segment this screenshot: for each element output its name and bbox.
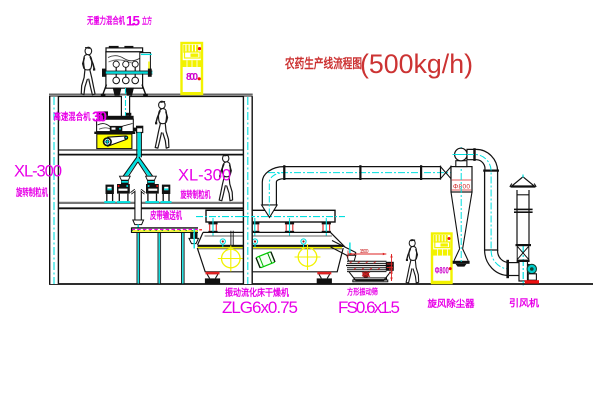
svg-text:方形振动筛: 方形振动筛 xyxy=(347,287,378,297)
svg-text:无重力混合机: 无重力混合机 xyxy=(86,15,125,27)
svg-text:(500kg/h): (500kg/h) xyxy=(360,49,473,79)
svg-text:540: 540 xyxy=(389,266,395,274)
svg-text:高速混合机: 高速混合机 xyxy=(54,111,91,123)
svg-text:Φ800: Φ800 xyxy=(435,266,449,277)
svg-text:皮带输送机: 皮带输送机 xyxy=(149,209,182,222)
svg-text:XL-300: XL-300 xyxy=(14,163,62,181)
svg-text:350: 350 xyxy=(92,110,107,126)
svg-text:旋转制粒机: 旋转制粒机 xyxy=(15,186,48,199)
svg-text:1500: 1500 xyxy=(360,249,369,255)
svg-text:农药生产线流程图: 农药生产线流程图 xyxy=(284,56,362,71)
svg-text:旋风除尘器: 旋风除尘器 xyxy=(427,298,475,310)
svg-text:ZLG6x0.75: ZLG6x0.75 xyxy=(222,298,298,317)
svg-text:1.5: 1.5 xyxy=(126,14,140,29)
svg-text:引风机: 引风机 xyxy=(509,298,540,310)
svg-text:800: 800 xyxy=(186,72,198,83)
svg-text:立方: 立方 xyxy=(142,15,152,26)
svg-text:XL-300: XL-300 xyxy=(178,167,231,185)
svg-text:FS0.6x1.5: FS0.6x1.5 xyxy=(338,298,400,317)
svg-text:旋转制粒机: 旋转制粒机 xyxy=(180,189,211,201)
